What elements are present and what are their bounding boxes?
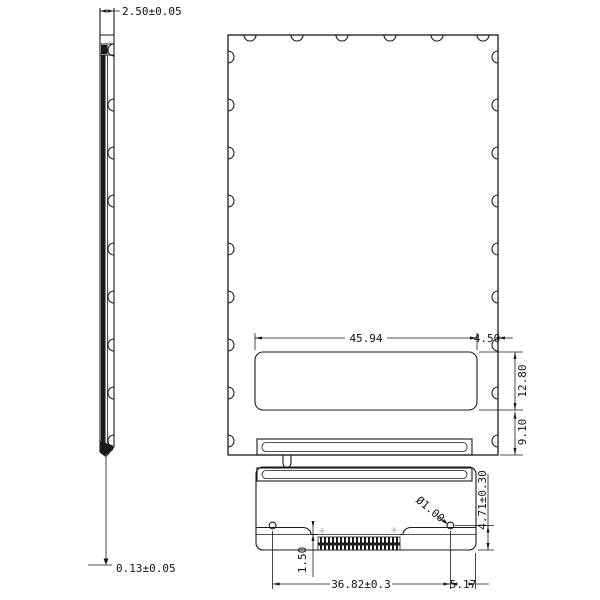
hole-diameter-label: Ø1.00 [413, 494, 447, 525]
connector-pins-band [318, 543, 400, 546]
fpc-top-bar-outer [257, 468, 472, 481]
bezel-bar-outer [257, 439, 472, 455]
hole-spacing-label: 36.82±0.3 [331, 578, 391, 591]
technical-drawing: 2.50±0.05 0.13±0.05 [0, 0, 600, 600]
window-height-label: 12.80 [516, 364, 529, 397]
dim-window-width: 45.94 4.50 [255, 332, 513, 350]
side-view-bumps [108, 44, 114, 447]
film-thickness-label: 0.13±0.05 [116, 562, 176, 575]
hole-to-edge-label: 5.17 [450, 578, 477, 591]
fpc-tail [256, 467, 476, 550]
connector-tab [283, 455, 291, 468]
window-right-margin-label: 4.50 [474, 332, 501, 345]
fpc-step-right [400, 528, 476, 535]
panel-outline [228, 35, 498, 455]
alignment-mark-left [319, 528, 325, 534]
alignment-mark-right [391, 527, 397, 533]
dim-window-height: 12.80 9.10 [479, 352, 529, 455]
dim-side-thickness: 2.50±0.05 [100, 5, 182, 18]
dim-film-thickness: 0.13±0.05 [88, 457, 176, 575]
fpc-step-left [256, 528, 318, 535]
drawing-canvas: 2.50±0.05 0.13±0.05 [0, 0, 600, 600]
window-width-label: 45.94 [349, 332, 382, 345]
panel-right-arcs [492, 51, 498, 447]
front-view [228, 35, 498, 468]
window-bottom-margin-label: 9.10 [516, 419, 529, 446]
backlight-window [255, 352, 477, 410]
bezel-bar-inner [262, 443, 467, 452]
dim-step-height: 1.50 [296, 521, 315, 577]
side-view-cap-fill [101, 45, 108, 54]
panel-left-arcs [228, 51, 234, 447]
side-thickness-label: 2.50±0.05 [122, 5, 182, 18]
dim-hole-to-bottom: 4.71±0.30 [455, 470, 494, 550]
fpc-top-bar-inner [262, 471, 467, 479]
dim-hole-diameter: Ø1.00 [413, 494, 447, 525]
step-height-label: 1.50 [296, 547, 309, 574]
side-view [100, 8, 114, 457]
side-view-polarizer [101, 55, 106, 443]
hole-to-bottom-label: 4.71±0.30 [476, 470, 489, 530]
panel-top-arcs [244, 35, 489, 41]
